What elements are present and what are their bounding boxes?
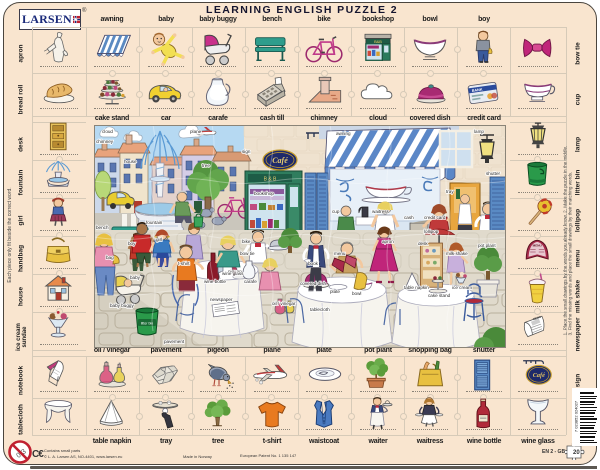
- svg-text:bookshop: bookshop: [254, 191, 274, 196]
- svg-text:waitress: waitress: [372, 209, 390, 214]
- svg-text:20: 20: [573, 450, 580, 456]
- svg-text:chimney: chimney: [96, 139, 114, 144]
- svg-text:Café: Café: [272, 156, 288, 165]
- svg-text:wine glass: wine glass: [222, 271, 244, 276]
- svg-text:pot plant: pot plant: [478, 243, 496, 248]
- svg-text:tablecloth: tablecloth: [310, 307, 330, 312]
- svg-text:menu: menu: [334, 251, 346, 256]
- svg-text:bow tie: bow tie: [240, 251, 255, 256]
- svg-text:book: book: [308, 261, 319, 266]
- svg-text:cake stand: cake stand: [428, 293, 451, 298]
- svg-text:MENU: MENU: [533, 244, 543, 248]
- svg-text:lamp: lamp: [474, 129, 484, 134]
- svg-text:awning: awning: [336, 131, 351, 136]
- svg-text:covered dish: covered dish: [300, 281, 326, 286]
- svg-text:plate: plate: [330, 289, 340, 294]
- svg-text:newspaper: newspaper: [210, 297, 233, 302]
- svg-text:plane: plane: [190, 129, 202, 134]
- svg-text:wine bottle: wine bottle: [204, 279, 226, 284]
- svg-text:tree: tree: [202, 163, 210, 168]
- svg-text:litter bin: litter bin: [141, 322, 153, 326]
- svg-text:apron: apron: [382, 239, 394, 244]
- svg-text:bag: bag: [106, 255, 114, 260]
- svg-text:boy: boy: [128, 241, 136, 246]
- svg-text:bowl: bowl: [352, 291, 361, 296]
- svg-text:fountain: fountain: [146, 220, 163, 225]
- svg-text:cup: cup: [332, 209, 340, 214]
- svg-text:t-shirt: t-shirt: [178, 261, 190, 266]
- svg-text:cash: cash: [404, 215, 414, 220]
- svg-text:desk: desk: [418, 241, 428, 246]
- svg-text:table napkin: table napkin: [404, 285, 429, 290]
- svg-text:tray: tray: [446, 189, 454, 194]
- svg-text:carafe: carafe: [244, 279, 257, 284]
- svg-text:credit card: credit card: [424, 215, 446, 220]
- svg-text:girl: girl: [156, 237, 162, 242]
- svg-text:bike: bike: [242, 239, 251, 244]
- svg-text:bench: bench: [96, 225, 109, 230]
- svg-text:Café: Café: [533, 372, 545, 379]
- svg-text:baby: baby: [130, 275, 141, 280]
- svg-text:oil / vinegar: oil / vinegar: [272, 301, 296, 306]
- svg-text:house: house: [124, 159, 137, 164]
- svg-text:ice cream: ice cream: [452, 285, 472, 290]
- svg-text:shutter: shutter: [486, 171, 501, 176]
- svg-text:baby buggy: baby buggy: [110, 303, 134, 308]
- svg-text:sign: sign: [242, 149, 251, 154]
- svg-text:pavement: pavement: [164, 339, 185, 344]
- svg-text:cloud: cloud: [102, 129, 113, 134]
- svg-text:lollipop: lollipop: [424, 229, 439, 234]
- svg-text:milk shake: milk shake: [446, 251, 468, 256]
